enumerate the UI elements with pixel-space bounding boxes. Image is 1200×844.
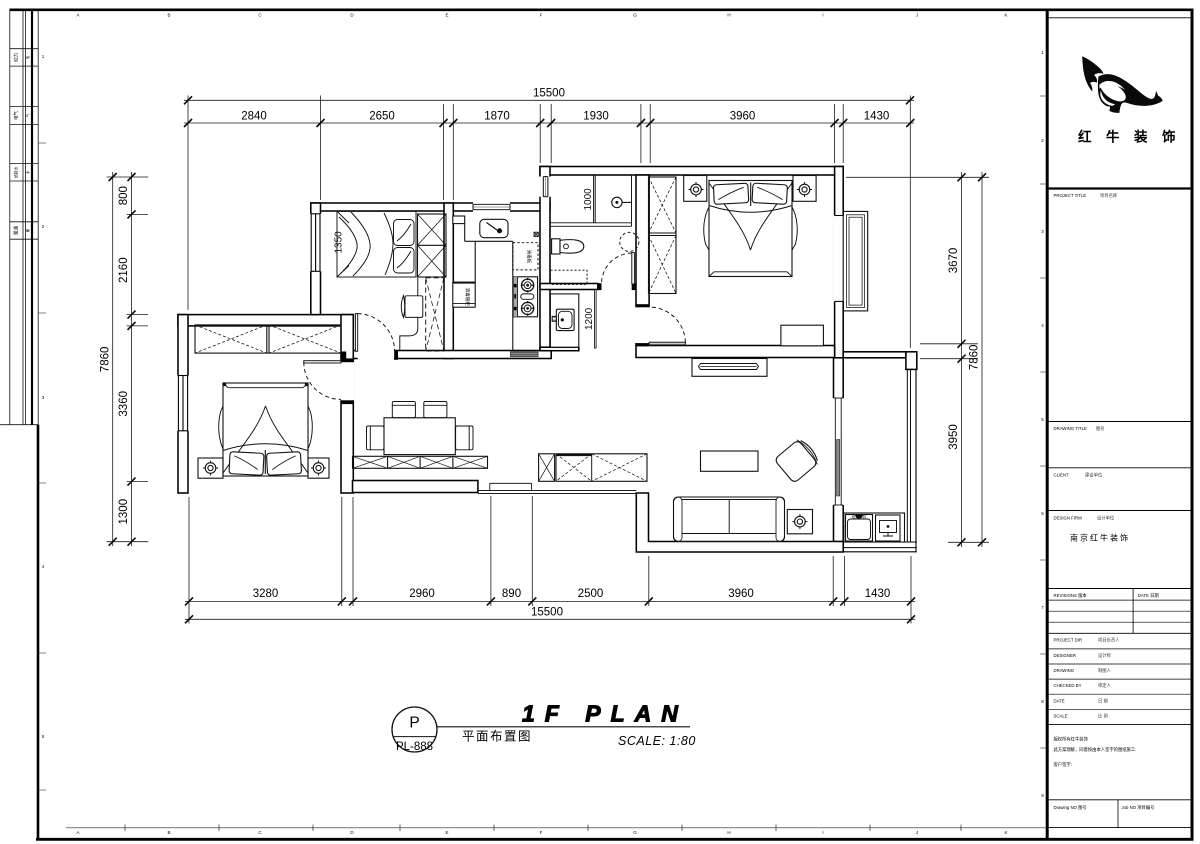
svg-text:Job NO 项目编号: Job NO 项目编号 bbox=[1122, 804, 1155, 811]
svg-text:F: F bbox=[540, 830, 543, 835]
svg-text:A: A bbox=[76, 13, 79, 18]
svg-text:项目负责人: 项目负责人 bbox=[1098, 637, 1120, 644]
svg-text:CHECKED BY: CHECKED BY bbox=[1054, 683, 1082, 688]
svg-text:PROJECT DIR: PROJECT DIR bbox=[1054, 638, 1083, 643]
svg-text:E: E bbox=[445, 13, 448, 18]
svg-text:版权所有红牛装饰: 版权所有红牛装饰 bbox=[1054, 736, 1089, 743]
svg-text:F: F bbox=[540, 13, 543, 18]
svg-text:建设单位: 建设单位 bbox=[1085, 472, 1103, 479]
svg-text:1000: 1000 bbox=[583, 188, 594, 211]
svg-text:H: H bbox=[727, 13, 730, 18]
svg-text:800: 800 bbox=[118, 186, 130, 205]
svg-text:SCALE: 1:80: SCALE: 1:80 bbox=[618, 734, 696, 748]
svg-text:B: B bbox=[167, 13, 170, 18]
svg-text:SCALE: SCALE bbox=[1054, 713, 1068, 718]
svg-text:3950: 3950 bbox=[948, 424, 960, 450]
svg-text:动力: 动力 bbox=[13, 53, 20, 63]
svg-text:DESIGN FIRM: DESIGN FIRM bbox=[1054, 515, 1083, 520]
svg-text:DATE: DATE bbox=[1054, 698, 1065, 703]
svg-text:给排水: 给排水 bbox=[14, 166, 19, 178]
svg-text:项目名称: 项目名称 bbox=[1100, 192, 1118, 199]
svg-text:3280: 3280 bbox=[253, 588, 279, 600]
svg-text:此方案理解，同意按由本人签字的图纸施工:: 此方案理解，同意按由本人签字的图纸施工: bbox=[1054, 746, 1137, 753]
svg-text:1350: 1350 bbox=[334, 231, 345, 254]
svg-text:暖通: 暖通 bbox=[13, 226, 20, 236]
svg-text:消毒柜: 消毒柜 bbox=[526, 250, 533, 264]
svg-text:PROJECT TITLE: PROJECT TITLE bbox=[1054, 193, 1087, 198]
svg-text:I: I bbox=[822, 13, 823, 18]
svg-text:审定人: 审定人 bbox=[1098, 682, 1112, 689]
svg-text:1430: 1430 bbox=[865, 588, 891, 600]
svg-text:DRAWING TITLE: DRAWING TITLE bbox=[1054, 426, 1088, 431]
svg-text:I: I bbox=[822, 830, 823, 835]
svg-text:消毒碗柜: 消毒碗柜 bbox=[464, 288, 471, 307]
svg-text:双滚衣机: 双滚衣机 bbox=[852, 514, 867, 519]
svg-text:制图人: 制图人 bbox=[1098, 667, 1112, 674]
svg-text:电气: 电气 bbox=[13, 111, 19, 121]
svg-text:J: J bbox=[916, 13, 918, 18]
svg-text:2960: 2960 bbox=[409, 588, 435, 600]
svg-text:3670: 3670 bbox=[948, 248, 960, 274]
svg-text:H: H bbox=[727, 830, 730, 835]
svg-text:890: 890 bbox=[502, 588, 521, 600]
svg-text:比 例: 比 例 bbox=[1098, 712, 1108, 719]
svg-text:3960: 3960 bbox=[730, 111, 756, 123]
svg-text:3960: 3960 bbox=[728, 588, 754, 600]
svg-text:7860: 7860 bbox=[969, 345, 981, 371]
svg-text:PL-888: PL-888 bbox=[396, 741, 433, 753]
svg-text:设计师: 设计师 bbox=[1098, 652, 1112, 659]
svg-text:2160: 2160 bbox=[118, 257, 130, 283]
svg-text:客户签字:: 客户签字: bbox=[1054, 761, 1072, 768]
svg-text:3360: 3360 bbox=[118, 391, 130, 417]
svg-text:B: B bbox=[167, 830, 170, 835]
svg-text:K: K bbox=[1004, 830, 1007, 835]
svg-text:15500: 15500 bbox=[531, 606, 563, 618]
svg-text:1300: 1300 bbox=[118, 499, 130, 525]
svg-text:设计单位: 设计单位 bbox=[1097, 514, 1115, 521]
svg-text:红牛装饰: 红牛装饰 bbox=[1078, 129, 1190, 145]
svg-text:1430: 1430 bbox=[864, 111, 890, 123]
svg-text:A: A bbox=[76, 830, 79, 835]
svg-text:南京红牛装饰: 南京红牛装饰 bbox=[1070, 533, 1130, 543]
svg-text:2840: 2840 bbox=[241, 111, 267, 123]
svg-text:2500: 2500 bbox=[578, 588, 604, 600]
svg-text:P: P bbox=[409, 715, 419, 732]
svg-text:1930: 1930 bbox=[583, 111, 609, 123]
svg-text:1F PLAN: 1F PLAN bbox=[522, 701, 688, 727]
svg-text:平面布置图: 平面布置图 bbox=[462, 730, 532, 744]
svg-text:7860: 7860 bbox=[100, 347, 112, 373]
svg-text:2650: 2650 bbox=[369, 111, 395, 123]
svg-text:1870: 1870 bbox=[484, 111, 510, 123]
svg-text:J: J bbox=[916, 830, 918, 835]
svg-text:图名: 图名 bbox=[1096, 425, 1105, 432]
svg-text:REVISIONS 版本: REVISIONS 版本 bbox=[1054, 592, 1088, 599]
svg-text:E: E bbox=[445, 830, 448, 835]
svg-text:1200: 1200 bbox=[584, 307, 595, 330]
svg-text:DRAWING: DRAWING bbox=[1054, 668, 1075, 673]
svg-text:K: K bbox=[1004, 13, 1007, 18]
svg-text:CLIENT: CLIENT bbox=[1054, 473, 1070, 478]
svg-text:15500: 15500 bbox=[533, 88, 565, 100]
svg-text:DESIGNER: DESIGNER bbox=[1054, 653, 1076, 658]
svg-text:G: G bbox=[633, 13, 637, 18]
svg-text:G: G bbox=[633, 830, 637, 835]
